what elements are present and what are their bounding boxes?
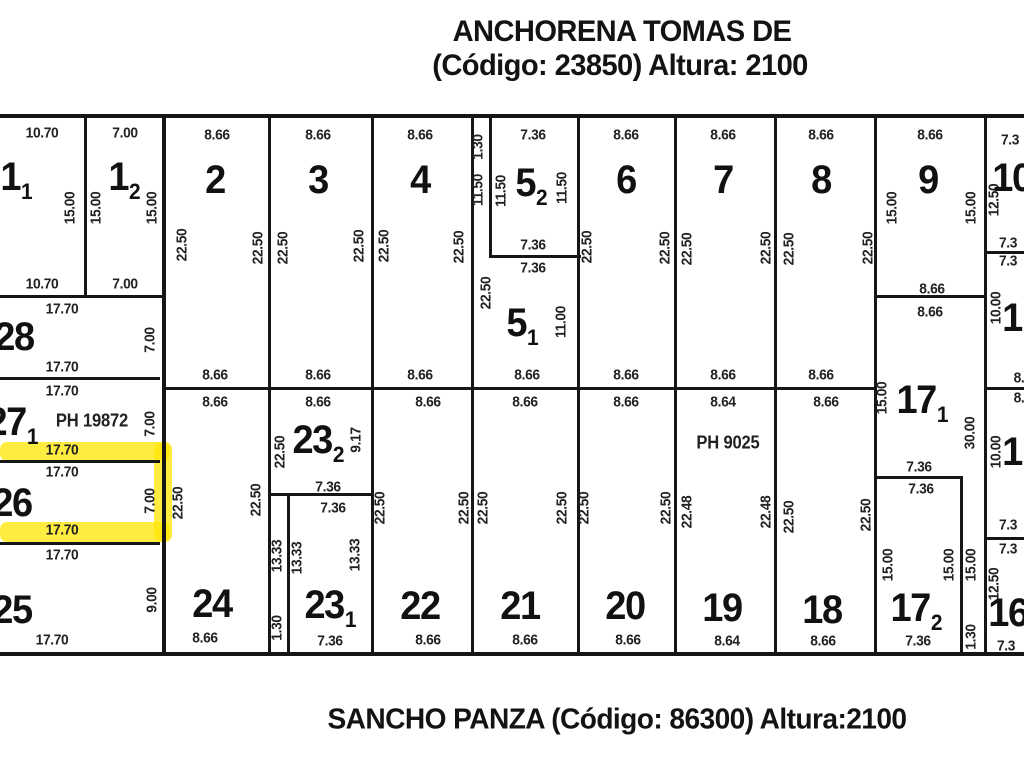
lot-number-main: 8	[811, 158, 831, 202]
dimension-label: 10.70	[26, 276, 59, 293]
dimension-label: 7.3	[999, 235, 1017, 252]
dimension-label: 15.00	[144, 192, 161, 225]
dimension-label: 7.00	[112, 125, 137, 142]
dimension-label: 8.66	[710, 367, 735, 384]
dimension-label: 8.	[1014, 370, 1024, 387]
lot-number: 2	[205, 160, 225, 200]
dimension-label: 22.50	[860, 232, 877, 265]
lot-number: 231	[304, 585, 355, 625]
dimension-label: 7.3	[999, 517, 1017, 534]
lot-number: 172	[890, 588, 941, 628]
dimension-label: 8.66	[415, 632, 440, 649]
street-name-bottom: SANCHO PANZA (Código: 86300) Altura:2100	[327, 704, 906, 737]
dimension-label: 15.00	[963, 549, 980, 582]
dimension-label: 15.00	[941, 549, 958, 582]
dimension-label: 8.66	[514, 367, 539, 384]
boundary-line	[489, 255, 581, 258]
lot-number: 26	[0, 483, 32, 523]
dimension-label: 17.70	[46, 383, 79, 400]
lot-number: 1	[1002, 432, 1022, 472]
dimension-label: 22.50	[554, 492, 571, 525]
dimension-label: 7.36	[520, 260, 545, 277]
dimension-label: 8.66	[305, 367, 330, 384]
dimension-label: 8.66	[808, 127, 833, 144]
dimension-label: 22.48	[758, 496, 775, 529]
dimension-label: 22.50	[781, 233, 798, 266]
dimension-label: 22.50	[376, 230, 393, 263]
dimension-label: 8.66	[613, 367, 638, 384]
boundary-line	[874, 476, 963, 479]
dimension-label: 22.50	[475, 492, 492, 525]
lot-number-main: 28	[0, 315, 34, 359]
dimension-label: 13.33	[289, 542, 306, 575]
lot-number-main: 1	[108, 155, 128, 199]
dimension-label: 8.66	[192, 630, 217, 647]
lot-number-main: 5	[515, 161, 535, 205]
dimension-label: 22.50	[272, 436, 289, 469]
dimension-label: 7.36	[315, 479, 340, 496]
dimension-label: 8.66	[917, 127, 942, 144]
lot-number: 52	[515, 163, 546, 203]
lot-number-main: 1	[0, 155, 20, 199]
lot-number-main: 19	[702, 586, 741, 630]
lot-number-main: 18	[802, 588, 841, 632]
boundary-line	[0, 114, 1024, 118]
lot-number-main: 1	[1002, 430, 1022, 474]
boundary-line	[0, 460, 160, 463]
dimension-label: 8.66	[202, 367, 227, 384]
lot-number-main: 1	[1002, 296, 1022, 340]
boundary-line	[166, 387, 877, 390]
lot-number-subscript: 1	[345, 607, 357, 632]
dimension-label: 7.3	[999, 253, 1017, 270]
highlight-marker	[0, 522, 170, 542]
lot-number-main: 26	[0, 481, 32, 525]
lot-number-subscript: 1	[21, 179, 33, 204]
dimension-label: 11.50	[554, 172, 571, 204]
lot-number-main: 17	[890, 586, 929, 630]
dimension-label: 8.66	[512, 394, 537, 411]
dimension-label: 7.36	[320, 500, 345, 517]
lot-number-main: 6	[616, 158, 636, 202]
lot-number: 21	[500, 586, 539, 626]
lot-number-subscript: 2	[931, 610, 943, 635]
dimension-label: 8.66	[407, 127, 432, 144]
boundary-line	[577, 117, 580, 653]
dimension-label: 11.50	[470, 174, 487, 206]
boundary-line	[371, 117, 374, 653]
dimension-label: 8.66	[305, 394, 330, 411]
dimension-label: 22.50	[679, 233, 696, 266]
dimension-label: 7.36	[908, 481, 933, 498]
dimension-label: 15.00	[874, 382, 891, 415]
lot-number: 171	[896, 380, 947, 420]
dimension-label: 8.66	[813, 394, 838, 411]
dimension-label: 15.00	[62, 192, 79, 225]
lot-number-main: 3	[308, 158, 328, 202]
dimension-label: 8.66	[919, 281, 944, 298]
lot-number-subscript: 1	[527, 325, 539, 350]
dimension-label: 17.70	[36, 632, 69, 649]
ph-label: PH 9025	[696, 433, 759, 454]
dimension-label: 22.50	[781, 501, 798, 534]
dimension-label: 30.00	[962, 417, 979, 450]
dimension-label: 8.66	[407, 367, 432, 384]
lot-number-main: 24	[192, 582, 231, 626]
lot-number: 1	[1002, 298, 1022, 338]
dimension-label: 7.00	[142, 488, 159, 513]
lot-number-subscript: 2	[536, 185, 548, 210]
dimension-label: 22.50	[758, 232, 775, 265]
dimension-label: 15.00	[88, 192, 105, 225]
lot-number: 8	[811, 160, 831, 200]
lot-number: 3	[308, 160, 328, 200]
dimension-label: 22.50	[576, 492, 593, 525]
lot-number: 9	[918, 160, 938, 200]
dimension-label: 8.64	[714, 633, 739, 650]
lot-number: 25	[0, 590, 32, 630]
lot-number-main: 21	[500, 584, 539, 628]
lot-number: 232	[292, 420, 343, 460]
lot-number: 24	[192, 584, 231, 624]
lot-number: 4	[410, 160, 430, 200]
lot-number: 19	[702, 588, 741, 628]
lot-number-main: 10	[992, 156, 1024, 200]
dimension-label: 8.64	[710, 394, 735, 411]
dimension-label: 17.70	[46, 442, 79, 459]
lot-number: 16	[988, 593, 1024, 633]
dimension-label: 22.50	[451, 231, 468, 264]
dimension-label: 8.66	[202, 394, 227, 411]
dimension-label: 7.36	[906, 459, 931, 476]
dimension-label: 22.50	[657, 232, 674, 265]
dimension-label: 17.70	[46, 464, 79, 481]
dimension-label: 9.00	[144, 587, 161, 612]
boundary-line	[0, 652, 1024, 656]
dimension-label: 22.50	[174, 229, 191, 262]
dimension-label: 8.66	[808, 367, 833, 384]
dimension-label: 17.70	[46, 547, 79, 564]
dimension-label: 22.50	[248, 484, 265, 517]
dimension-label: 8.66	[710, 127, 735, 144]
dimension-label: 10.70	[26, 125, 59, 142]
lot-number-main: 23	[304, 583, 343, 627]
lot-number: 51	[506, 303, 537, 343]
boundary-line	[674, 117, 677, 653]
ph-label: PH 19872	[56, 411, 128, 432]
dimension-label: 8.	[1014, 390, 1024, 407]
boundary-line	[268, 117, 271, 653]
lot-number: 11	[0, 157, 31, 197]
lot-number-main: 9	[918, 158, 938, 202]
lot-number-subscript: 1	[937, 402, 949, 427]
lot-number: 12	[108, 157, 139, 197]
boundary-line	[0, 295, 163, 298]
lot-number: 7	[713, 160, 733, 200]
dimension-label: 8.66	[810, 633, 835, 650]
lot-number: 10	[992, 158, 1024, 198]
lot-number-subscript: 1	[27, 424, 39, 449]
dimension-label: 15.00	[884, 192, 901, 225]
dimension-label: 8.66	[415, 394, 440, 411]
boundary-line	[0, 542, 160, 545]
dimension-label: 8.66	[615, 632, 640, 649]
lot-number: 22	[400, 586, 439, 626]
dimension-label: 1.30	[470, 134, 487, 159]
dimension-label: 11.00	[553, 306, 570, 338]
lot-number-main: 2	[205, 158, 225, 202]
lot-number-main: 7	[713, 158, 733, 202]
dimension-label: 15.00	[880, 549, 897, 582]
dimension-label: 11.50	[493, 175, 510, 207]
lot-number: 271	[0, 402, 38, 442]
lot-number-main: 17	[896, 378, 935, 422]
dimension-label: 1.30	[963, 624, 980, 649]
lot-number-main: 20	[605, 584, 644, 628]
dimension-label: 1.30	[269, 615, 286, 640]
highlight-marker	[0, 442, 170, 461]
lot-number-main: 27	[0, 400, 26, 444]
dimension-label: 7.36	[905, 633, 930, 650]
lot-number-main: 4	[410, 158, 430, 202]
dimension-label: 8.66	[204, 127, 229, 144]
dimension-label: 7.36	[520, 237, 545, 254]
lot-number-main: 16	[988, 591, 1024, 635]
dimension-label: 22.50	[658, 492, 675, 525]
dimension-label: 7.36	[520, 127, 545, 144]
dimension-label: 13.33	[347, 539, 364, 572]
cadastral-plan: ANCHORENA TOMAS DE (Código: 23850) Altur…	[0, 0, 1024, 768]
dimension-label: 7.3	[997, 638, 1015, 655]
dimension-label: 7.00	[142, 411, 159, 436]
boundary-line	[0, 377, 160, 380]
lot-number-main: 23	[292, 418, 331, 462]
dimension-label: 7.3	[999, 541, 1017, 558]
dimension-label: 8.66	[305, 127, 330, 144]
lot-number-subscript: 2	[129, 179, 141, 204]
dimension-label: 8.66	[917, 304, 942, 321]
dimension-label: 22.50	[250, 232, 267, 265]
dimension-label: 22.50	[351, 230, 368, 263]
dimension-label: 22.50	[275, 232, 292, 265]
lot-number-main: 25	[0, 588, 32, 632]
dimension-label: 7.36	[317, 633, 342, 650]
dimension-label: 22.50	[858, 499, 875, 532]
dimension-label: 8.66	[613, 394, 638, 411]
dimension-label: 7.00	[112, 276, 137, 293]
boundary-line	[774, 117, 777, 653]
dimension-label: 15.00	[963, 192, 980, 225]
lot-number: 6	[616, 160, 636, 200]
lot-number-subscript: 2	[333, 442, 345, 467]
lot-number: 18	[802, 590, 841, 630]
dimension-label: 8.66	[512, 632, 537, 649]
dimension-label: 22.50	[372, 492, 389, 525]
dimension-label: 7.3	[1001, 132, 1019, 149]
dimension-label: 17.70	[46, 359, 79, 376]
dimension-label: 22.48	[679, 496, 696, 529]
street-code-top: (Código: 23850) Altura: 2100	[432, 49, 808, 83]
lot-number: 28	[0, 317, 34, 357]
dimension-label: 22.50	[456, 492, 473, 525]
lot-number-main: 22	[400, 584, 439, 628]
boundary-line	[162, 117, 166, 653]
lot-number: 20	[605, 586, 644, 626]
street-name-top: ANCHORENA TOMAS DE	[453, 15, 792, 49]
dimension-label: 7.00	[142, 327, 159, 352]
lot-number-main: 5	[506, 301, 526, 345]
dimension-label: 22.50	[170, 487, 187, 520]
dimension-label: 17.70	[46, 301, 79, 318]
dimension-label: 9.17	[348, 427, 365, 452]
dimension-label: 17.70	[46, 522, 79, 539]
dimension-label: 22.50	[478, 277, 495, 310]
dimension-label: 8.66	[613, 127, 638, 144]
dimension-label: 22.50	[579, 231, 596, 264]
dimension-label: 13.33	[269, 540, 286, 573]
